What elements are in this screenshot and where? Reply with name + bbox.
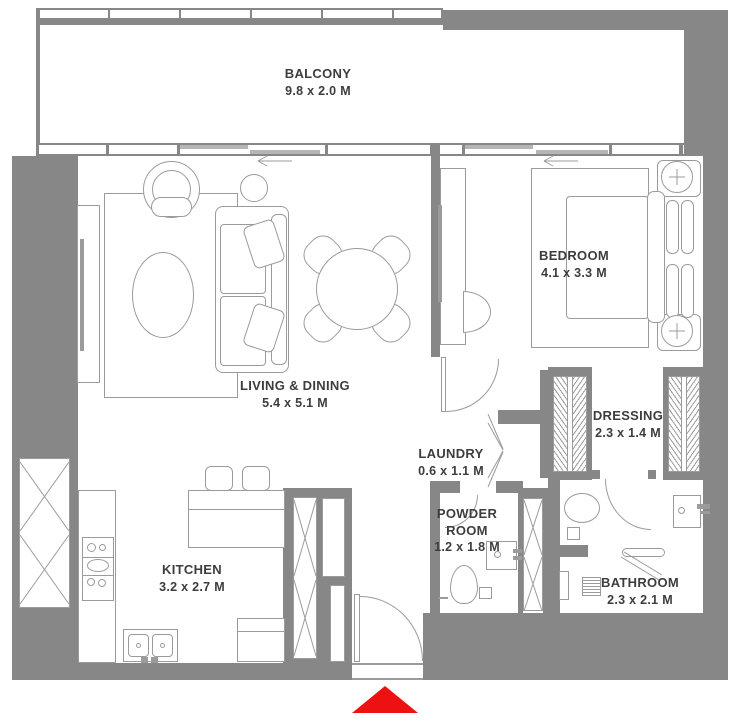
burner-oval [87, 559, 109, 572]
sliding-door-panel [465, 145, 533, 149]
burner [87, 543, 96, 552]
entry-closet [293, 497, 317, 659]
powder-sink-tap [513, 556, 522, 560]
entrance-arrow-icon [352, 686, 418, 713]
window-mullion [609, 144, 612, 155]
room-name: POWDER ROOM [432, 506, 502, 539]
powder-bin [479, 587, 492, 599]
wall-left-strip-inner [70, 458, 78, 608]
floor-plan: BALCONY 9.8 x 2.0 M LIVING & DINING 5.4 … [0, 0, 739, 726]
bar-stool [242, 466, 270, 491]
pillow [666, 200, 679, 254]
powder-toilet [450, 565, 478, 604]
coffee-table [132, 252, 194, 338]
ceiling-lamp [661, 161, 693, 193]
balcony-parapet [36, 8, 443, 20]
sliding-door-panel [536, 150, 608, 154]
fridge [237, 618, 285, 662]
powder-sink-tap [513, 549, 522, 553]
window-mullion [430, 144, 440, 155]
parapet-post [108, 8, 110, 20]
service-shaft-powder [523, 498, 543, 611]
room-label-bedroom: BEDROOM 4.1 x 3.3 M [539, 248, 609, 281]
sliding-door-panel [180, 145, 248, 149]
wall-bottom-right [423, 663, 728, 680]
parapet-post [321, 8, 323, 20]
cooktop-divider [83, 557, 113, 558]
bedroom-chair [463, 291, 491, 333]
wall-dressing-left [540, 370, 548, 478]
wall-parapet-base [36, 20, 443, 25]
towel-rail [622, 548, 665, 557]
room-label-kitchen: KITCHEN 3.2 x 2.7 M [159, 562, 225, 595]
wall-powder-top-left [430, 481, 460, 493]
wall-right-main [703, 156, 728, 663]
powder-tap [438, 597, 448, 599]
parapet-post [250, 8, 252, 20]
window-mullion [106, 144, 109, 155]
room-dims: 3.2 x 2.7 M [159, 579, 225, 596]
pillow [666, 264, 679, 318]
bathroom-fixture [559, 571, 569, 600]
window-mullion [325, 144, 328, 155]
room-label-balcony: BALCONY 9.8 x 2.0 M [285, 66, 351, 99]
room-dims: 9.8 x 2.0 M [285, 83, 351, 100]
wall-top-right-block [443, 10, 728, 30]
kitchen-island [188, 490, 285, 548]
ceiling-lamp [661, 315, 693, 347]
burner [98, 579, 106, 587]
wardrobe-left [553, 376, 587, 472]
wardrobe-right [668, 376, 700, 472]
window-mullion [36, 144, 39, 155]
room-dims: 5.4 x 5.1 M [240, 395, 350, 412]
wall-jamb-dressing-left [592, 470, 600, 479]
room-dims: 4.1 x 3.3 M [539, 265, 609, 282]
cooktop-divider [83, 575, 113, 576]
armchair-seat [151, 197, 192, 217]
side-table [240, 174, 268, 202]
wall-left-column [12, 156, 78, 458]
bathroom-bin [567, 527, 580, 540]
room-label-laundry: LAUNDRY 0.6 x 1.1 M [418, 446, 484, 479]
room-label-powder-room: POWDER ROOM 1.2 x 1.8 M [432, 506, 502, 556]
room-name: BATHROOM [601, 575, 679, 592]
room-dims: 0.6 x 1.1 M [418, 463, 484, 480]
wall-bathroom-partition [560, 545, 588, 557]
pillow [681, 264, 694, 318]
room-dims: 2.3 x 1.4 M [593, 425, 663, 442]
shower-drain [582, 577, 601, 596]
sink-drain [136, 643, 141, 648]
entry-cabinet-lower [330, 585, 345, 662]
room-name: KITCHEN [159, 562, 225, 579]
sliding-door-panel [250, 150, 320, 154]
bathroom-door-swing [605, 479, 651, 530]
burner [87, 578, 95, 586]
bar-stool [205, 466, 233, 491]
parapet-post [38, 8, 40, 20]
room-name: BEDROOM [539, 248, 609, 265]
room-name: LIVING & DINING [240, 378, 350, 395]
bedroom-tv [438, 205, 442, 302]
wall-right-upper [684, 30, 728, 156]
pillow [681, 200, 694, 254]
room-name: DRESSING [593, 408, 663, 425]
island-divider [189, 509, 284, 510]
room-label-living-dining: LIVING & DINING 5.4 x 5.1 M [240, 378, 350, 411]
vanity-drain [678, 507, 685, 514]
sink-faucet [151, 657, 158, 663]
burner [99, 544, 106, 551]
vanity-tap [697, 504, 710, 509]
fridge-divider [238, 631, 284, 632]
threshold-line [352, 663, 423, 665]
dining-table [316, 248, 398, 330]
window-mullion [679, 144, 683, 155]
room-label-dressing: DRESSING 2.3 x 1.4 M [593, 408, 663, 441]
wall-jamb-dressing-right [648, 470, 656, 479]
parapet-post [179, 8, 181, 20]
bedroom-door-swing [446, 359, 499, 412]
vanity-tap [700, 511, 710, 514]
balcony-left-wall [36, 22, 40, 143]
wall-bottom-middle [423, 613, 728, 663]
room-name: BALCONY [285, 66, 351, 83]
sink-drain [160, 643, 165, 648]
wall-shaft-cap [518, 488, 548, 498]
wall-left-below-shaft [12, 608, 78, 663]
tv [80, 239, 84, 351]
wall-shaft-side-right [543, 498, 548, 613]
parapet-post [392, 8, 394, 20]
room-label-bathroom: BATHROOM 2.3 x 2.1 M [601, 575, 679, 608]
headboard [647, 191, 665, 323]
room-dims: 1.2 x 1.8 M [432, 539, 502, 556]
entry-door-swing [360, 596, 423, 661]
service-shaft-left [19, 458, 70, 608]
room-name: LAUNDRY [418, 446, 484, 463]
bathroom-toilet [564, 493, 600, 523]
entry-cabinet-upper [322, 498, 345, 577]
threshold-line [352, 678, 423, 680]
sink-faucet [141, 657, 148, 663]
room-dims: 2.3 x 2.1 M [601, 592, 679, 609]
